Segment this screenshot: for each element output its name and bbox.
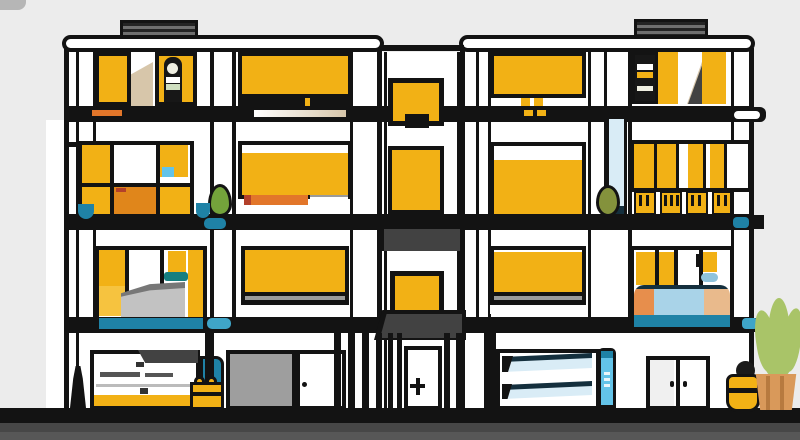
window-panel bbox=[658, 52, 678, 104]
window-center-lower bbox=[390, 271, 444, 315]
figure-stripe bbox=[637, 64, 653, 70]
window-sub-sill bbox=[490, 305, 586, 314]
window-top-right-wide bbox=[490, 52, 586, 98]
sill-stripe-white bbox=[310, 195, 348, 205]
bench-peach-right bbox=[704, 289, 730, 317]
slab-teal-pill bbox=[204, 218, 226, 229]
shutter-mullion bbox=[676, 144, 679, 188]
center-bay-lintel bbox=[380, 45, 464, 51]
vent-slot bbox=[691, 195, 694, 206]
sapling-pot bbox=[196, 203, 210, 218]
kiosk-drawer-line bbox=[96, 384, 196, 387]
center-recess-band bbox=[380, 229, 464, 251]
vent-slot bbox=[724, 195, 727, 206]
entrance-railing bbox=[444, 333, 450, 410]
shutter-mullion bbox=[724, 144, 727, 188]
pane-mullion bbox=[674, 250, 678, 285]
window-lower-left-wide bbox=[241, 246, 349, 296]
window-top-left-tall bbox=[95, 52, 131, 106]
clay-pot bbox=[754, 374, 798, 410]
window-sub-sill bbox=[241, 305, 349, 314]
vent-slot bbox=[717, 195, 720, 206]
balcony-rail-top-left bbox=[238, 96, 352, 108]
shutter-panel bbox=[688, 144, 703, 188]
vent-slot bbox=[664, 195, 667, 206]
fruit-crate bbox=[190, 382, 224, 410]
curb-line bbox=[0, 408, 800, 423]
rail-dash bbox=[524, 110, 533, 116]
slab-accent-orange bbox=[92, 110, 122, 116]
entrance-railing bbox=[362, 333, 369, 410]
street-post bbox=[484, 333, 496, 410]
floor-slab-2-end bbox=[752, 215, 764, 229]
drainpipe-cap bbox=[601, 351, 613, 358]
service-door-handle bbox=[302, 382, 307, 387]
kiosk-slit bbox=[100, 372, 140, 377]
shutter-mullion bbox=[703, 144, 706, 188]
window-glass bbox=[242, 153, 348, 195]
crate-band bbox=[192, 392, 222, 396]
vent-slot bbox=[646, 195, 649, 206]
slab-teal-pill bbox=[207, 318, 231, 329]
entrance-door-handle-h bbox=[410, 384, 425, 388]
parapet-right bbox=[459, 35, 755, 52]
window-glass bbox=[494, 160, 582, 214]
rail-dash bbox=[537, 110, 546, 116]
vent-slot bbox=[698, 195, 701, 206]
window-top-left-wide bbox=[238, 52, 352, 98]
storage-jar bbox=[726, 374, 760, 412]
entrance-railing bbox=[456, 333, 462, 410]
bed-bench bbox=[634, 285, 730, 317]
bedroom-pane bbox=[636, 252, 655, 285]
entrance-railing bbox=[397, 333, 402, 410]
sill-gray-line bbox=[245, 296, 345, 300]
window-center-mid bbox=[388, 146, 444, 214]
parapet-left bbox=[62, 35, 384, 52]
shutter-panel bbox=[710, 144, 724, 188]
balcony-sapling-leaf bbox=[208, 184, 232, 217]
orange-box-mark bbox=[116, 188, 126, 192]
drainpipe-tick bbox=[604, 378, 610, 381]
side-return-wall bbox=[46, 120, 66, 410]
sill-gray-line bbox=[494, 296, 582, 300]
slab-accent-white bbox=[254, 110, 346, 117]
entrance-railing bbox=[348, 333, 355, 410]
grid-cell-blue-accent bbox=[162, 167, 174, 177]
figure-stripe-cream bbox=[637, 86, 653, 91]
slab-end-cap bbox=[734, 111, 760, 119]
window-teal-sill bbox=[634, 315, 730, 327]
asphalt-strip-light bbox=[0, 432, 800, 440]
kiosk-dot bbox=[136, 362, 144, 367]
window-glass bbox=[494, 252, 582, 292]
olive-plant-leaf bbox=[596, 185, 620, 217]
door-handle-dot bbox=[670, 381, 674, 387]
figure-stripe bbox=[166, 77, 180, 83]
door-center-line bbox=[676, 356, 680, 410]
kiosk-drawer-handle bbox=[140, 388, 148, 394]
clay-pot-stripe bbox=[766, 376, 770, 410]
window-teal-sill bbox=[99, 318, 203, 329]
vent-slot bbox=[676, 195, 679, 206]
rail-dash bbox=[534, 98, 543, 106]
kiosk-slit bbox=[145, 373, 173, 377]
vent-box bbox=[634, 191, 656, 215]
mullion bbox=[588, 52, 591, 332]
illustration-canvas bbox=[0, 0, 800, 440]
bedroom-pane bbox=[703, 252, 717, 272]
grid-cell bbox=[160, 187, 190, 214]
kiosk-base-stripe bbox=[94, 395, 196, 406]
bench-peach-left bbox=[634, 289, 654, 317]
vent-box bbox=[686, 191, 708, 215]
shutter-panel bbox=[657, 144, 676, 188]
pane-blue-pill bbox=[701, 273, 718, 282]
kiosk-top-wedge bbox=[138, 350, 198, 363]
vent-box bbox=[712, 191, 732, 215]
jar-band bbox=[728, 388, 758, 393]
sill-stripe-orange bbox=[244, 195, 308, 205]
vent-slot bbox=[639, 195, 642, 206]
drainpipe-tick bbox=[604, 372, 610, 375]
grid-cell bbox=[82, 145, 110, 185]
figure-stripe-green bbox=[166, 84, 180, 90]
entrance-railing bbox=[334, 333, 341, 410]
slab-teal-pill bbox=[733, 217, 749, 228]
bedroom-pane bbox=[659, 252, 674, 285]
entrance-railing bbox=[388, 333, 393, 410]
corner-artifact bbox=[0, 0, 26, 10]
rail-dash bbox=[521, 98, 530, 106]
window-panel bbox=[702, 52, 726, 104]
bench-blue-middle bbox=[654, 289, 704, 317]
succulent-leaf-center bbox=[764, 324, 792, 376]
figure-stripe bbox=[637, 72, 653, 78]
sill-stripe-red-tip bbox=[244, 195, 251, 205]
figure-head bbox=[167, 63, 178, 74]
entrance-door bbox=[404, 346, 442, 410]
clay-pot-stripe bbox=[780, 376, 784, 410]
vent-slot bbox=[670, 195, 673, 206]
grid-cell bbox=[188, 250, 203, 317]
asphalt-strip bbox=[0, 423, 800, 432]
drainpipe-tick bbox=[604, 384, 610, 387]
mullion bbox=[232, 52, 236, 332]
small-pane-sill bbox=[164, 272, 188, 281]
rail-dash bbox=[305, 98, 310, 106]
window-center-top-notch bbox=[405, 114, 429, 128]
mullion bbox=[476, 52, 479, 332]
door-handle-dot bbox=[683, 381, 687, 387]
figure-in-doorway-right bbox=[632, 52, 658, 104]
grid-mullion bbox=[160, 246, 164, 286]
roller-garage-door bbox=[226, 350, 296, 410]
entrance-railing bbox=[376, 333, 382, 410]
shutter-panel bbox=[634, 144, 654, 188]
